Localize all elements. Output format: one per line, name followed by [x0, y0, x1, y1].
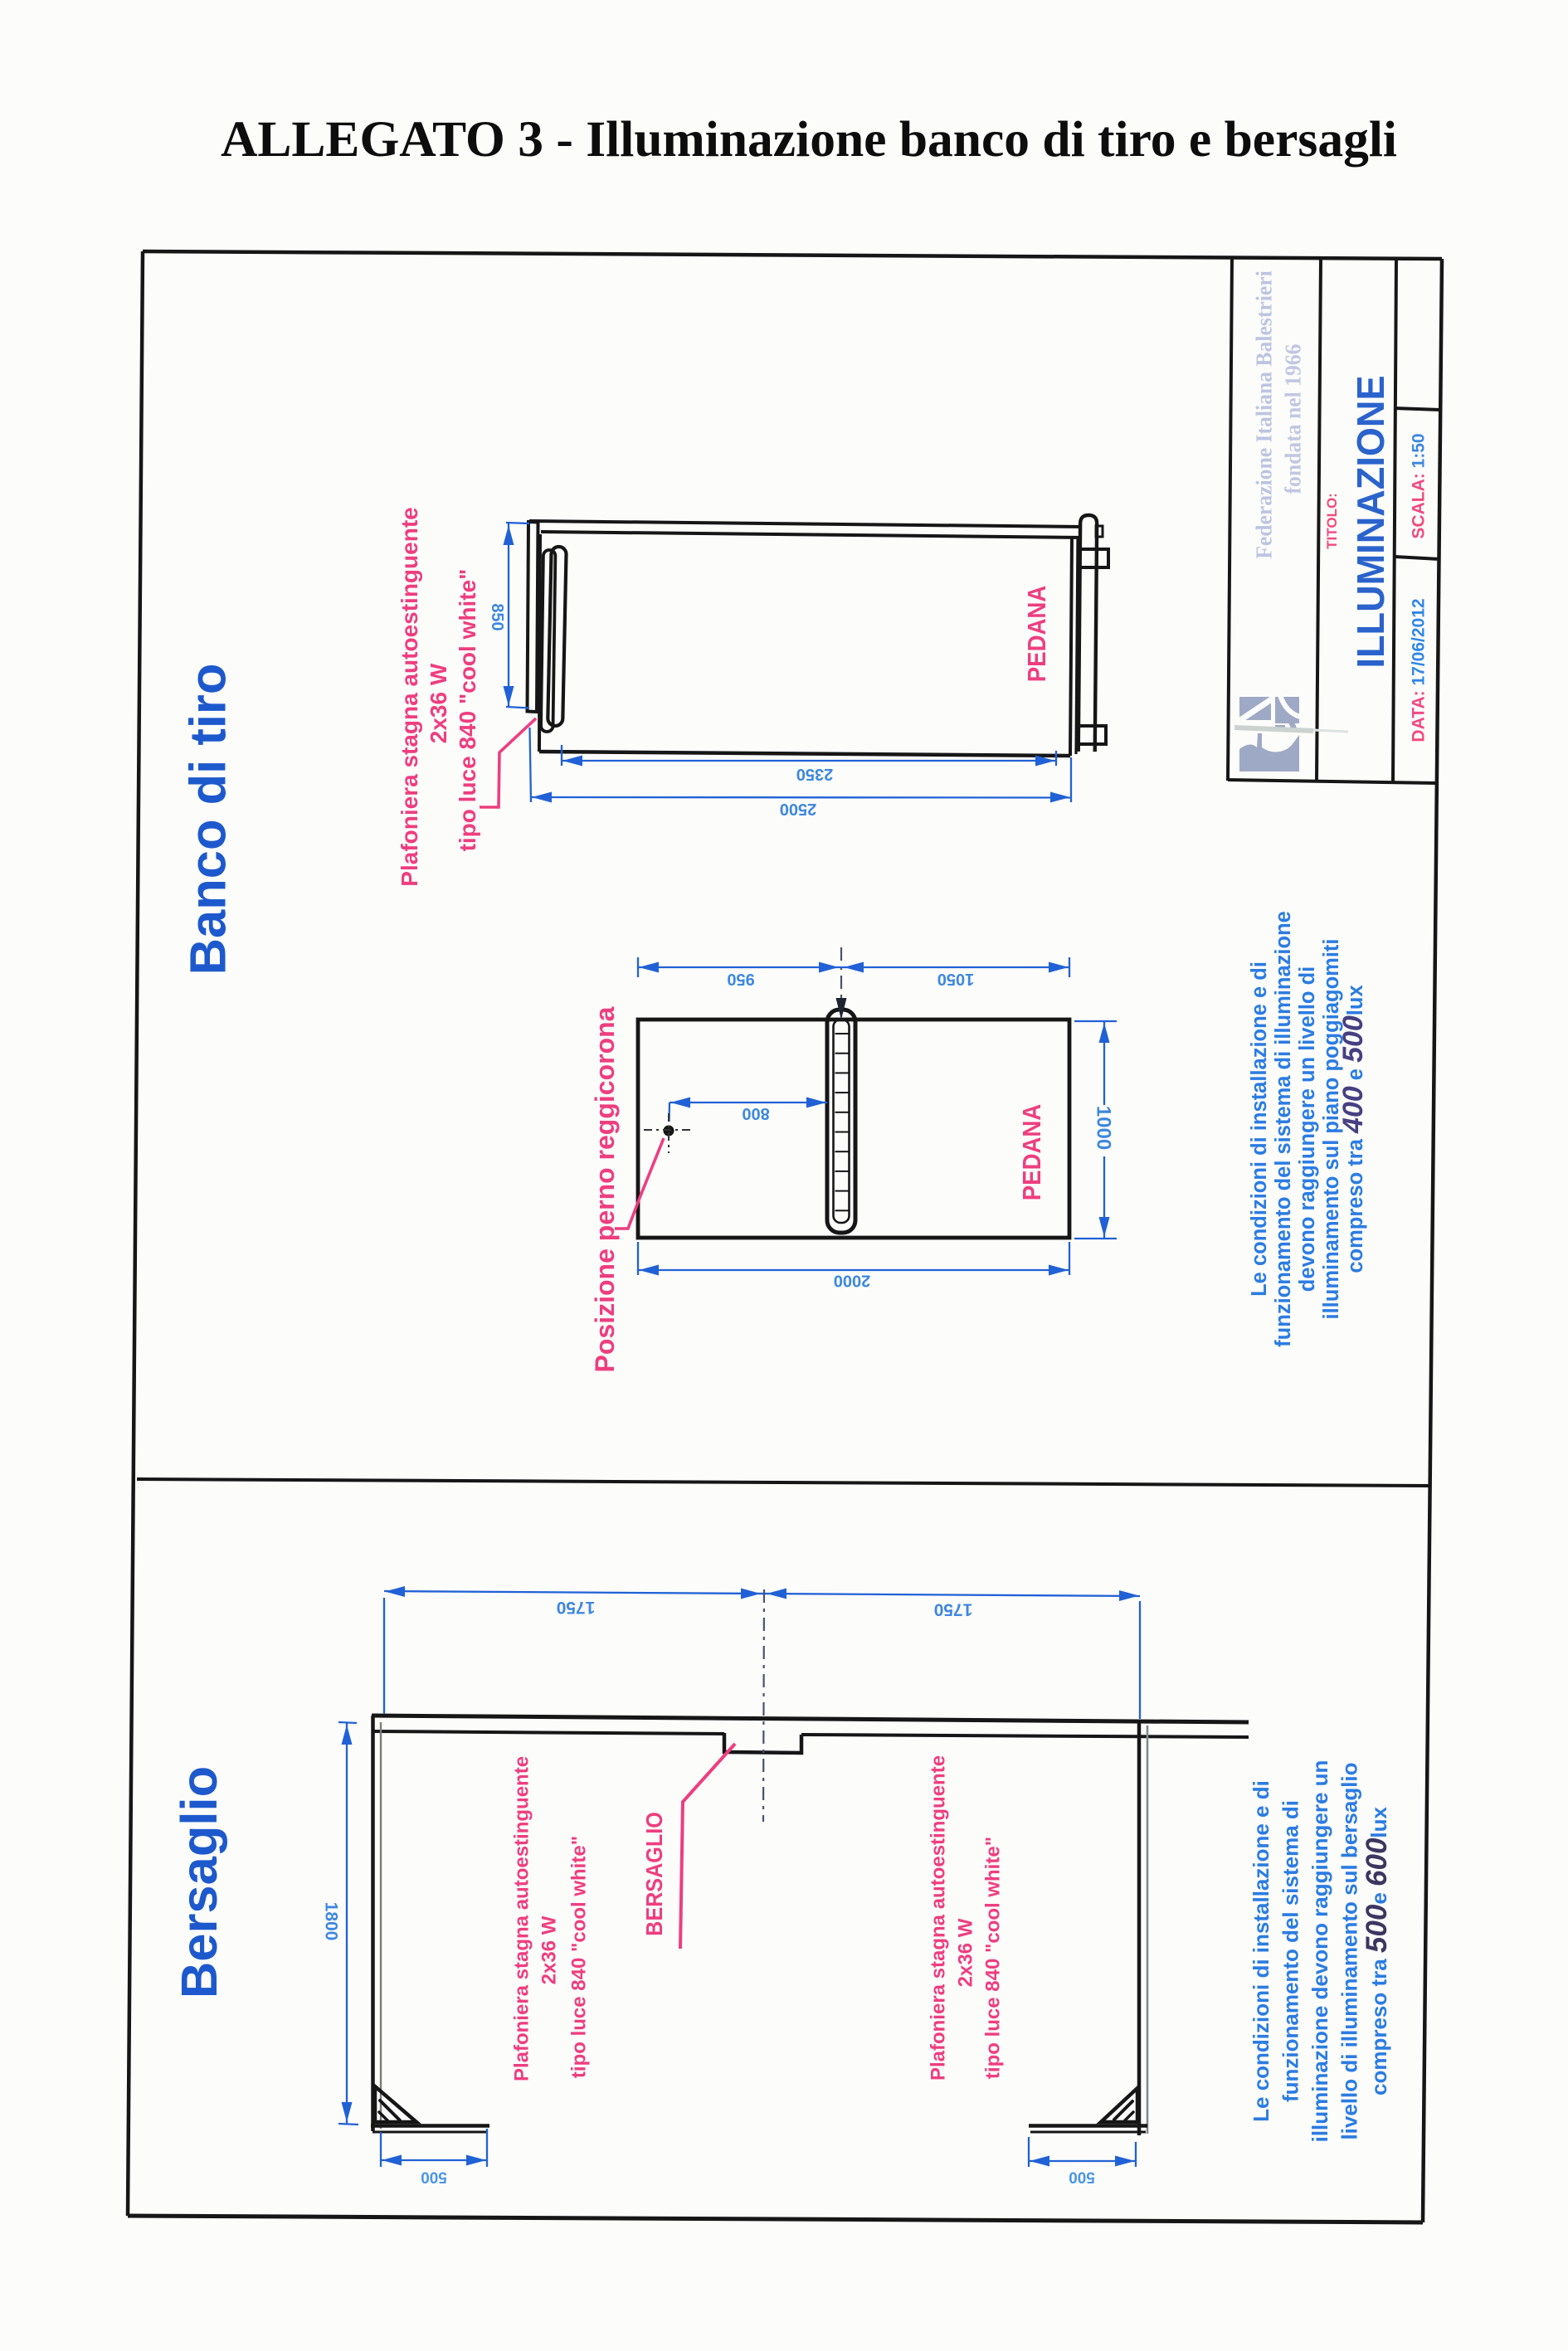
svg-text:2350: 2350 [796, 765, 834, 783]
svg-text:Plafoniera stagna autoestingue: Plafoniera stagna autoestinguente [510, 1756, 533, 2081]
svg-text:850: 850 [488, 603, 506, 630]
svg-text:1000: 1000 [1093, 1106, 1115, 1150]
svg-text:BERSAGLIO: BERSAGLIO [641, 1812, 668, 1936]
svg-text:800: 800 [742, 1104, 769, 1122]
svg-text:compreso tra 500e 600lux: compreso tra 500e 600lux [1361, 1806, 1393, 2095]
svg-text:1750: 1750 [934, 1600, 973, 1619]
svg-text:PEDANA: PEDANA [1017, 1104, 1046, 1200]
svg-text:Federazione Italiana Balestrie: Federazione Italiana Balestrieri [1252, 270, 1277, 559]
svg-text:1800: 1800 [322, 1902, 341, 1941]
svg-text:2500: 2500 [780, 800, 817, 818]
svg-text:Plafoniera stagna autoestingue: Plafoniera stagna autoestinguente [397, 507, 422, 886]
svg-text:500: 500 [421, 2168, 447, 2185]
svg-text:2x36 W: 2x36 W [954, 1918, 976, 1987]
svg-text:2000: 2000 [834, 1272, 871, 1290]
svg-text:TITOLO:: TITOLO: [1324, 493, 1340, 549]
svg-text:2x36 W: 2x36 W [538, 1915, 560, 1984]
svg-text:Posizione perno reggicorona: Posizione perno reggicorona [590, 1006, 620, 1372]
svg-text:PEDANA: PEDANA [1022, 586, 1051, 682]
svg-text:Plafoniera stagna autoestingue: Plafoniera stagna autoestinguente [927, 1755, 949, 2081]
svg-text:Le condizioni di installazione: Le condizioni di installazione e di [1249, 1780, 1273, 2122]
svg-text:funzionamento del sistema di i: funzionamento del sistema di illuminazio… [1272, 911, 1295, 1347]
svg-text:1050: 1050 [937, 970, 975, 988]
svg-text:fondata nel 1966: fondata nel 1966 [1281, 344, 1306, 494]
svg-text:tipo luce 840 "cool white": tipo luce 840 "cool white" [981, 1837, 1004, 2079]
svg-text:tipo luce 840 "cool white": tipo luce 840 "cool white" [455, 569, 480, 852]
svg-text:1750: 1750 [557, 1598, 596, 1617]
svg-text:tipo luce 840 "cool white": tipo luce 840 "cool white" [567, 1836, 590, 2078]
svg-text:illuminazione devono raggiunge: illuminazione devono raggiungere un [1307, 1760, 1332, 2143]
svg-text:Banco di tiro: Banco di tiro [180, 664, 237, 976]
svg-text:500: 500 [1069, 2168, 1095, 2185]
svg-text:SCALA: 1:50: SCALA: 1:50 [1409, 433, 1428, 538]
svg-text:Le condizioni di installazione: Le condizioni di installazione e di [1248, 961, 1271, 1297]
svg-text:ILLUMINAZIONE: ILLUMINAZIONE [1350, 375, 1393, 668]
svg-text:DATA: 17/06/2012: DATA: 17/06/2012 [1409, 598, 1428, 742]
svg-text:Bersaglio: Bersaglio [171, 1766, 228, 1998]
svg-text:livello di illuminamento sul b: livello di illuminamento sul bersaglio [1337, 1762, 1362, 2139]
svg-text:devono raggiungere un livello: devono raggiungere un livello di [1296, 966, 1319, 1292]
svg-text:950: 950 [727, 970, 754, 988]
svg-text:funzionamento del sistema di: funzionamento del sistema di [1278, 1800, 1303, 2102]
svg-text:2x36 W: 2x36 W [426, 663, 451, 743]
